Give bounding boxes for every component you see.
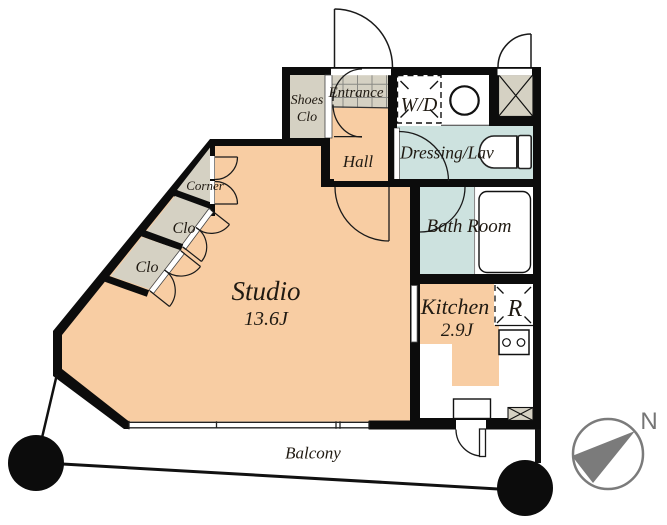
svg-text:Clo: Clo xyxy=(297,110,317,125)
svg-text:W/D: W/D xyxy=(401,94,438,116)
svg-text:Balcony: Balcony xyxy=(285,444,341,463)
svg-text:R: R xyxy=(507,296,523,322)
svg-text:Entrance: Entrance xyxy=(328,85,384,101)
svg-text:Clo: Clo xyxy=(135,259,158,276)
svg-text:Dressing/Lav: Dressing/Lav xyxy=(399,143,494,163)
svg-text:N: N xyxy=(640,408,657,435)
svg-text:13.6J: 13.6J xyxy=(244,308,289,330)
svg-text:Clo: Clo xyxy=(172,220,195,237)
svg-text:Studio: Studio xyxy=(231,276,300,306)
svg-text:Hall: Hall xyxy=(342,152,374,171)
svg-text:2.9J: 2.9J xyxy=(441,320,475,341)
svg-text:Bath Room: Bath Room xyxy=(427,216,512,237)
svg-text:Shoes: Shoes xyxy=(291,93,324,108)
svg-text:Corner: Corner xyxy=(186,178,225,193)
svg-text:Kitchen: Kitchen xyxy=(420,294,489,319)
